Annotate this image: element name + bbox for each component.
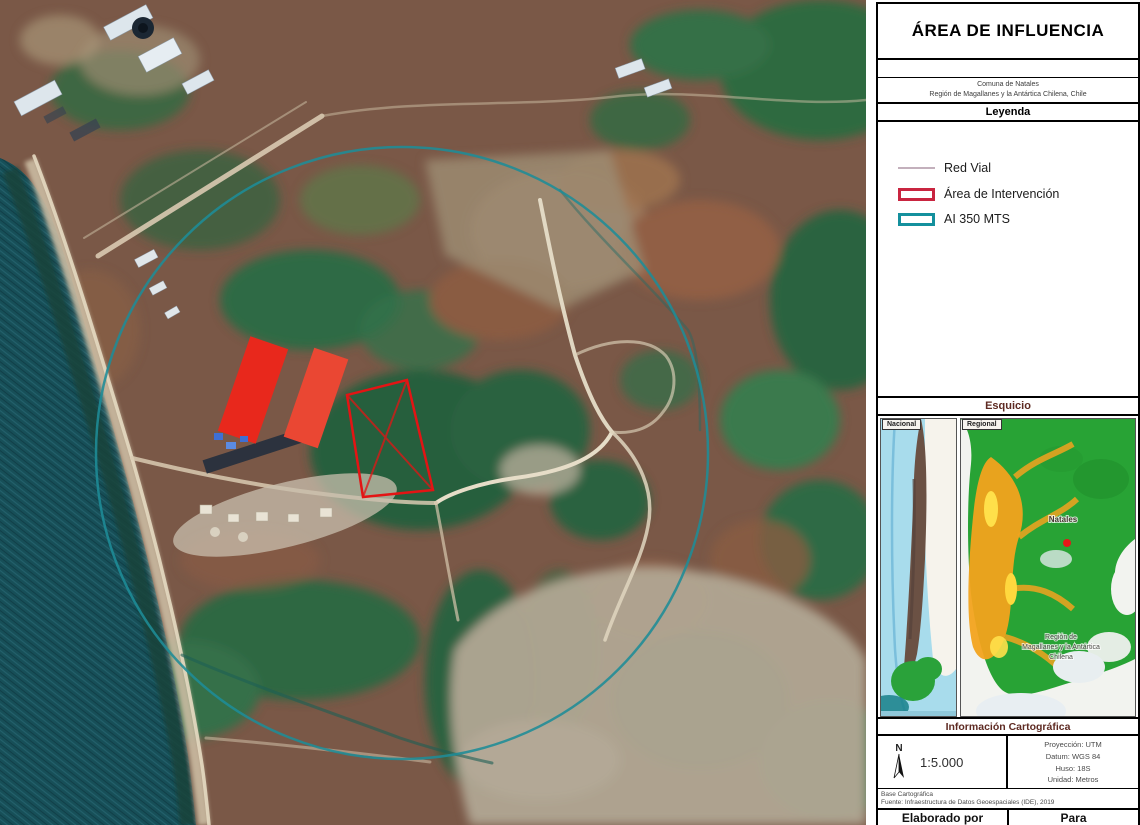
tab-nacional: Nacional (882, 419, 921, 430)
source-title: Base Cartográfica (881, 791, 1135, 799)
spacer-box (878, 60, 1138, 78)
page-title: ÁREA DE INFLUENCIA (912, 21, 1105, 41)
blue-roof-2 (226, 442, 236, 449)
red-vial-swatch (898, 160, 935, 176)
region-label-line3: Chilena (1049, 654, 1073, 661)
map-sheet-panel: ÁREA DE INFLUENCIA Comuna de Natales Reg… (876, 2, 1140, 825)
legend-box: Red Vial Área de Intervención AI 350 MTS (878, 122, 1138, 398)
tab-regional: Regional (962, 419, 1002, 430)
satellite-map-canvas (0, 0, 866, 825)
locator-maps: Nacional Regional (878, 416, 1138, 719)
source-box: Base Cartográfica Fuente: Infraestructur… (878, 789, 1138, 810)
region-label-line2: Magallanes y la Antártica (1022, 644, 1100, 651)
area-intervencion-swatch (898, 188, 935, 201)
location-subtitle: Comuna de Natales Región de Magallanes y… (878, 78, 1138, 105)
elaborado-por-cell: Elaborado por (878, 810, 1009, 825)
source-line: Fuente: Infraestructura de Datos Geoespa… (881, 799, 1135, 807)
north-arrow-icon: N (888, 742, 910, 782)
cartographic-info-box: N 1:5.000 Proyección: UTM Datum: WGS 84 … (878, 736, 1138, 789)
esquicio-header: Esquicio (878, 398, 1138, 416)
project-location-dot (1063, 539, 1071, 547)
datum: Datum: WGS 84 (1008, 751, 1138, 763)
subtitle-region: Región de Magallanes y la Antártica Chil… (878, 90, 1138, 100)
scale-value: 1:5.000 (920, 755, 963, 770)
legend-header: Leyenda (878, 104, 1138, 122)
para-cell: Para (1009, 810, 1138, 825)
blue-roof-3 (240, 436, 248, 442)
cartographic-info-header: Información Cartográfica (878, 719, 1138, 736)
credits-row: Elaborado por Para (878, 810, 1138, 825)
blue-roof-1 (214, 433, 223, 440)
national-inset-map (880, 418, 957, 717)
ai-350-swatch (898, 213, 935, 226)
natales-label: Natales (1049, 515, 1078, 524)
utm-zone: Huso: 18S (1008, 763, 1138, 775)
projection: Proyección: UTM (1008, 739, 1138, 751)
satellite-map (0, 0, 866, 825)
map-layout-sheet: ÁREA DE INFLUENCIA Comuna de Natales Reg… (0, 0, 1140, 825)
regional-inset-map: Natales Región de Magallanes y la Antárt… (960, 418, 1136, 717)
projection-cell: Proyección: UTM Datum: WGS 84 Huso: 18S … (1008, 736, 1138, 788)
subtitle-commune: Comuna de Natales (878, 80, 1138, 90)
legend-item-ai350: AI 350 MTS (898, 212, 1138, 226)
legend-item-intervencion: Área de Intervención (898, 187, 1138, 201)
svg-text:N: N (895, 743, 902, 754)
region-label-line1: Región de (1045, 634, 1077, 641)
title-box: ÁREA DE INFLUENCIA (878, 4, 1138, 60)
scale-cell: N 1:5.000 (878, 736, 1008, 788)
legend-item-red-vial: Red Vial (898, 160, 1138, 176)
unit: Unidad: Metros (1008, 774, 1138, 786)
